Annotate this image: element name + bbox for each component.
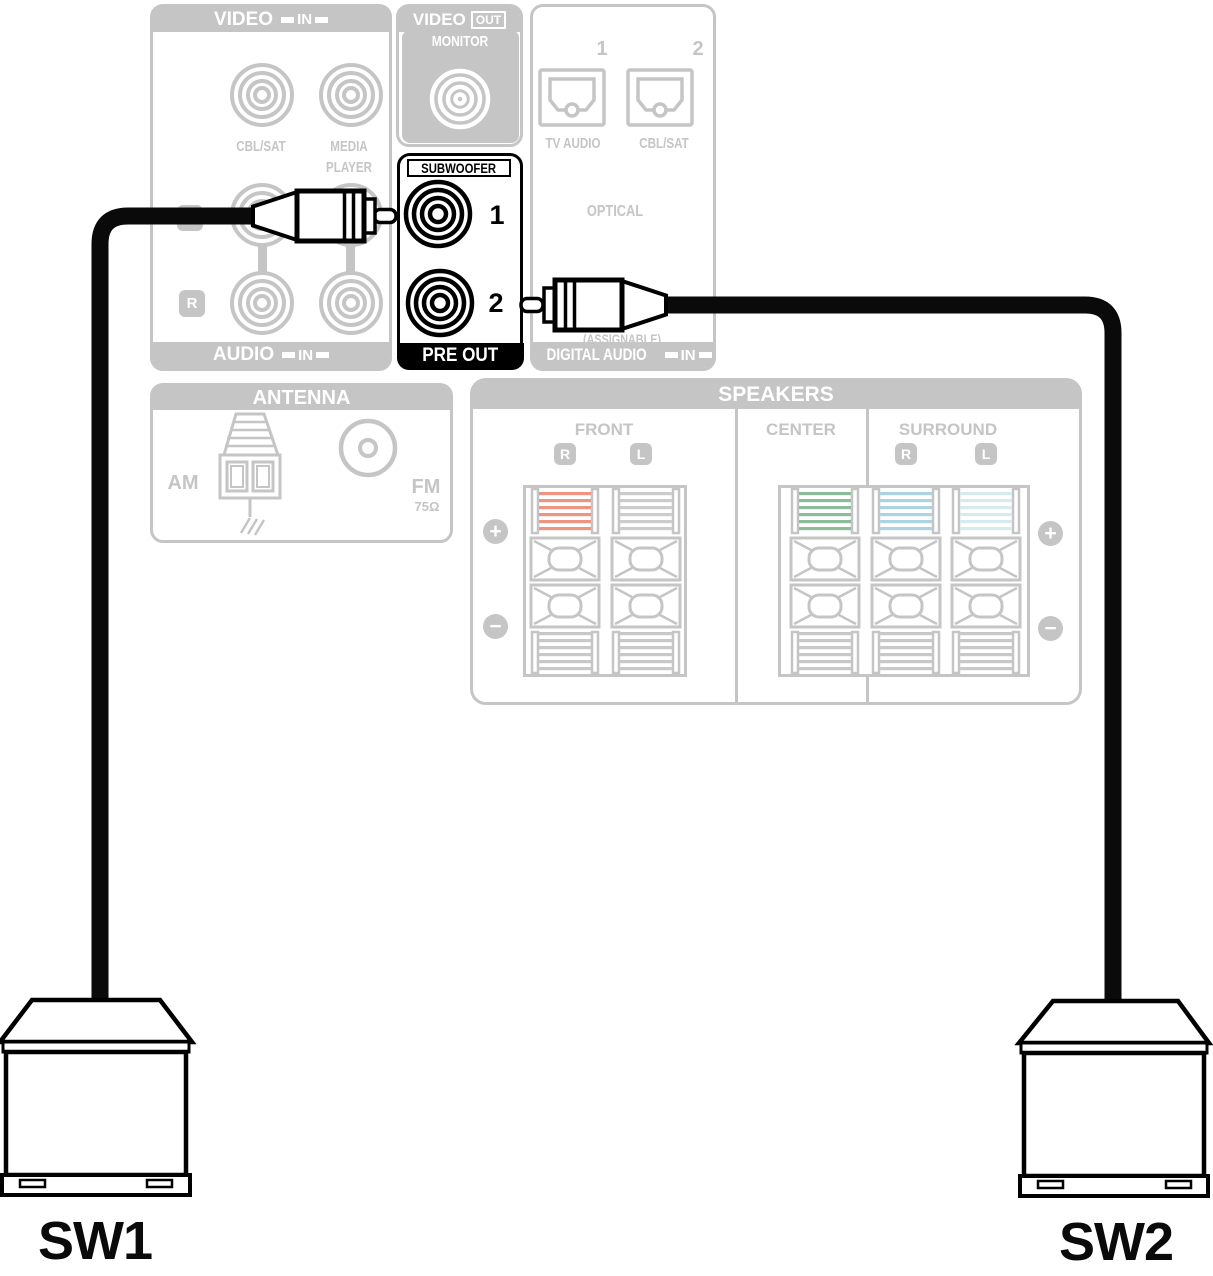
terminal-rail (953, 632, 959, 673)
panel-antenna: ANTENNA (150, 383, 453, 543)
rca-jack-subwoofer-1 (403, 179, 473, 249)
jack-connector-bar (346, 245, 355, 272)
plus-icon: + (1038, 521, 1063, 546)
optical-1-number: 1 (596, 38, 607, 61)
subwoofer-jack-2-number: 2 (488, 288, 503, 319)
badge-bar (699, 352, 712, 358)
badge-bar (282, 352, 295, 358)
terminal-base-stripes (620, 632, 672, 673)
rca-jack-cbl-sat-audio-l (229, 182, 295, 248)
surround-left-badge: L (975, 443, 997, 465)
screw-terminal (872, 585, 940, 627)
center-terminal-cap (799, 489, 851, 533)
rca-jack-cbl-sat-audio-r (229, 270, 295, 336)
label-sw1: SW1 (38, 1210, 152, 1272)
label-media: MEDIA (330, 139, 367, 155)
in-badge: IN (665, 347, 712, 364)
rca-jack-monitor (428, 67, 492, 131)
minus-icon: − (1038, 616, 1063, 641)
subwoofer-sw1-box (0, 1000, 192, 1195)
am-antenna-terminal (216, 409, 286, 539)
plus-label: + (1044, 523, 1056, 544)
minus-label: − (1044, 618, 1056, 639)
label-cbl-sat: CBL/SAT (236, 139, 285, 155)
in-badge: IN (281, 11, 328, 28)
terminal-rail (873, 489, 879, 533)
rca-jack-cbl-sat-video (229, 62, 295, 128)
out-badge-label: OUT (476, 13, 501, 27)
optical-jack-tv-audio (538, 68, 606, 128)
terminal-rail (592, 489, 598, 533)
rca-jack-media-player-audio-r (318, 270, 384, 336)
label-optical: OPTICAL (587, 203, 643, 221)
badge-bar (315, 17, 328, 23)
rca-jack-subwoofer-2 (405, 268, 475, 338)
front-right-badge-label: R (560, 446, 570, 462)
optical-jack-cbl-sat (626, 68, 694, 128)
terminal-rail (792, 489, 798, 533)
video-in-header: VIDEO IN (153, 7, 389, 32)
audio-in-footer: AUDIO IN (153, 342, 389, 368)
terminal-base-stripes (880, 632, 932, 673)
badge-bar (316, 352, 329, 358)
terminal-rail (592, 632, 598, 673)
terminal-rail (532, 632, 538, 673)
front-left-badge-label: L (637, 446, 646, 462)
terminal-base-stripes (799, 632, 851, 673)
terminal-rail (933, 489, 939, 533)
rca-jack-media-player-video (318, 62, 384, 128)
pre-out-label: PRE OUT (422, 345, 498, 367)
antenna-header: ANTENNA (153, 386, 450, 410)
in-badge-label: IN (298, 347, 313, 364)
surround-right-badge: R (895, 443, 917, 465)
front-speaker-terminal-block (523, 485, 687, 677)
video-out-header: VIDEO OUT (399, 7, 520, 32)
terminal-rail (613, 489, 619, 533)
channel-badge-right: R (179, 290, 205, 317)
label-monitor: MONITOR (432, 33, 488, 50)
surround-left-badge-label: L (982, 446, 991, 462)
terminal-rail (1013, 489, 1019, 533)
center-surround-speaker-terminal-block (778, 485, 1030, 677)
screw-terminal (791, 538, 859, 580)
terminal-rail (852, 632, 858, 673)
terminal-rail (673, 489, 679, 533)
subwoofer-jack-1-number: 1 (489, 200, 504, 231)
subwoofer-title-box: SUBWOOFER (407, 159, 511, 177)
label-surround: SURROUND (899, 420, 997, 440)
digital-audio-title: DIGITAL AUDIO (547, 345, 647, 365)
screw-terminal (791, 585, 859, 627)
label-front: FRONT (575, 420, 634, 440)
surround-right-terminal-cap (880, 489, 932, 533)
plus-label: + (489, 521, 501, 542)
terminal-rail (792, 632, 798, 673)
terminal-rail (953, 489, 959, 533)
front-left-badge: L (630, 443, 652, 465)
terminal-rail (873, 632, 879, 673)
terminal-base-stripes (960, 632, 1012, 673)
plus-icon: + (483, 519, 508, 544)
front-right-badge: R (554, 443, 576, 465)
label-cbl-sat-optical: CBL/SAT (639, 136, 688, 152)
screw-terminal (531, 538, 599, 580)
panel-digital-audio-in: DIGITAL AUDIO IN (530, 4, 716, 371)
screw-terminal (952, 538, 1020, 580)
minus-icon: − (483, 614, 508, 639)
screw-terminal (612, 585, 680, 627)
terminal-rail (933, 632, 939, 673)
subwoofer-title: SUBWOOFER (422, 161, 497, 176)
minus-label: − (489, 616, 501, 637)
terminal-rail (613, 632, 619, 673)
in-badge: IN (282, 347, 329, 364)
label-tv-audio: TV AUDIO (546, 136, 601, 152)
fm-antenna-jack (337, 417, 399, 479)
jack-connector-bar (258, 245, 267, 272)
terminal-rail (1013, 632, 1019, 673)
terminal-rail (532, 489, 538, 533)
subwoofer-sw2-box (1019, 1001, 1209, 1196)
surround-left-terminal-cap (960, 489, 1012, 533)
label-assignable: (ASSIGNABLE) (583, 332, 661, 347)
channel-badge-left: L (177, 205, 203, 231)
video-in-title: VIDEO (214, 9, 273, 31)
label-player: PLAYER (326, 160, 372, 176)
terminal-rail (852, 489, 858, 533)
front-left-terminal-cap (620, 489, 672, 533)
rear-panel-connection-diagram: VIDEO IN AUDIO IN (0, 0, 1213, 1276)
label-sw2: SW2 (1059, 1211, 1173, 1273)
front-right-terminal-cap (539, 489, 591, 533)
surround-right-badge-label: R (901, 446, 911, 462)
audio-in-title: AUDIO (213, 344, 274, 366)
rca-jack-media-player-audio-l (318, 182, 384, 248)
screw-terminal (872, 538, 940, 580)
channel-badge-left-label: L (185, 210, 194, 227)
screw-terminal (612, 538, 680, 580)
label-am: AM (167, 472, 198, 495)
optical-2-number: 2 (692, 38, 703, 61)
terminal-rail (673, 632, 679, 673)
out-badge: OUT (471, 11, 506, 29)
speakers-section-divider (735, 408, 738, 702)
pre-out-bar: PRE OUT (397, 343, 524, 370)
badge-bar (665, 352, 678, 358)
screw-terminal (952, 585, 1020, 627)
video-out-title: VIDEO (413, 10, 466, 30)
channel-badge-right-label: R (187, 295, 198, 312)
badge-bar (281, 17, 294, 23)
label-fm-impedance: 75Ω (415, 499, 440, 514)
terminal-base-stripes (539, 632, 591, 673)
speakers-header: SPEAKERS (473, 381, 1079, 409)
label-center: CENTER (766, 420, 836, 440)
screw-terminal (531, 585, 599, 627)
speakers-title: SPEAKERS (718, 383, 834, 407)
antenna-title: ANTENNA (253, 387, 351, 410)
in-badge-label: IN (297, 11, 312, 28)
in-badge-label: IN (681, 347, 696, 364)
label-fm: FM (412, 476, 441, 499)
